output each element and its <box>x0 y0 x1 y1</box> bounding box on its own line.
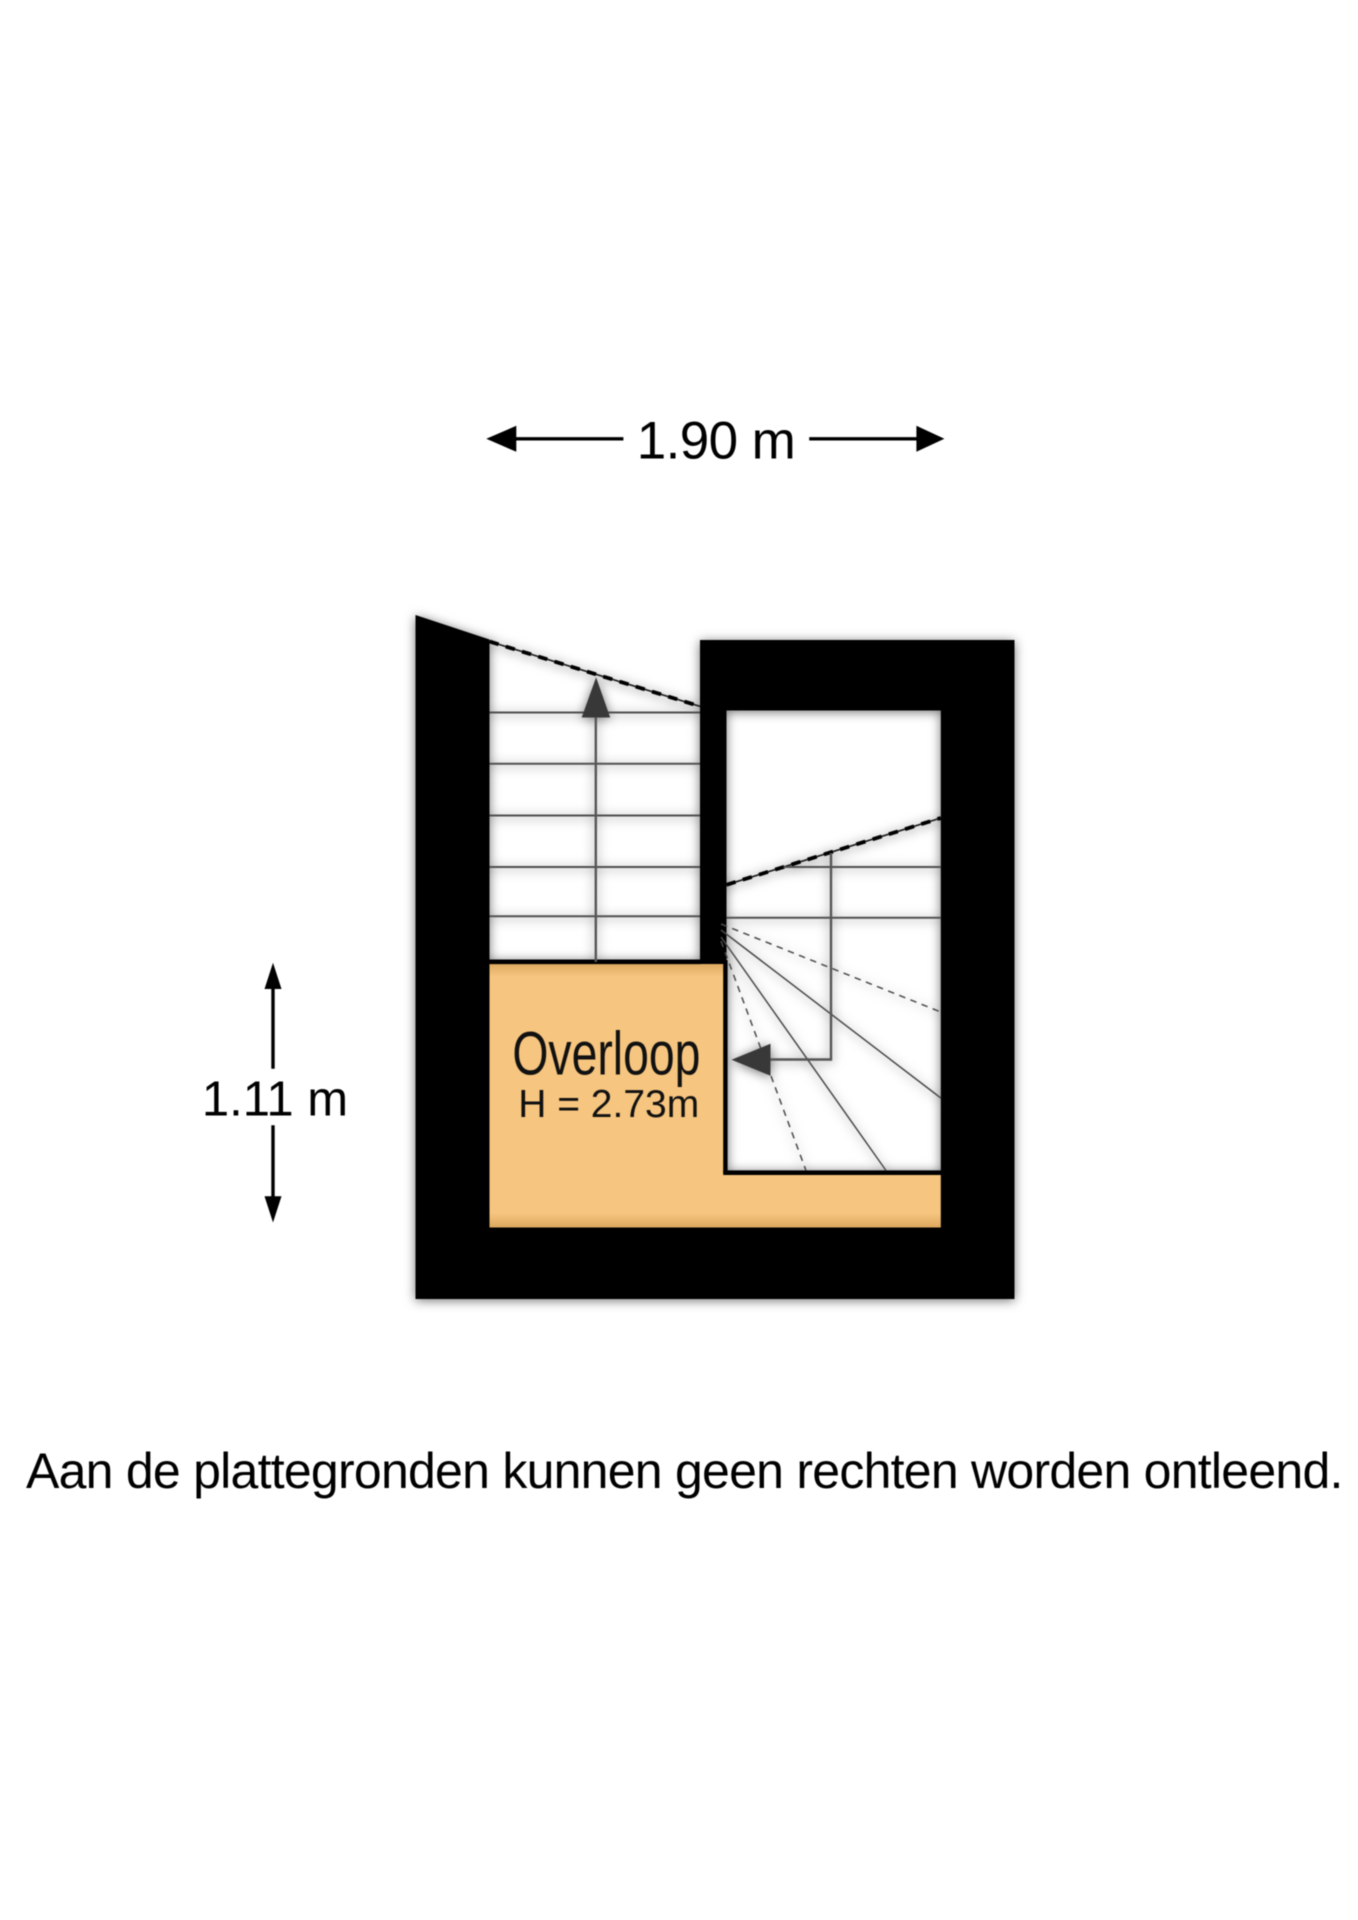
svg-text:Overloop: Overloop <box>512 1020 700 1088</box>
svg-text:1.11 m: 1.11 m <box>202 1073 348 1127</box>
svg-text:H = 2.73m: H = 2.73m <box>518 1083 699 1126</box>
svg-text:1.90 m: 1.90 m <box>637 412 795 471</box>
svg-text:Aan de plattegronden kunnen ge: Aan de plattegronden kunnen geen rechten… <box>26 1443 1343 1499</box>
